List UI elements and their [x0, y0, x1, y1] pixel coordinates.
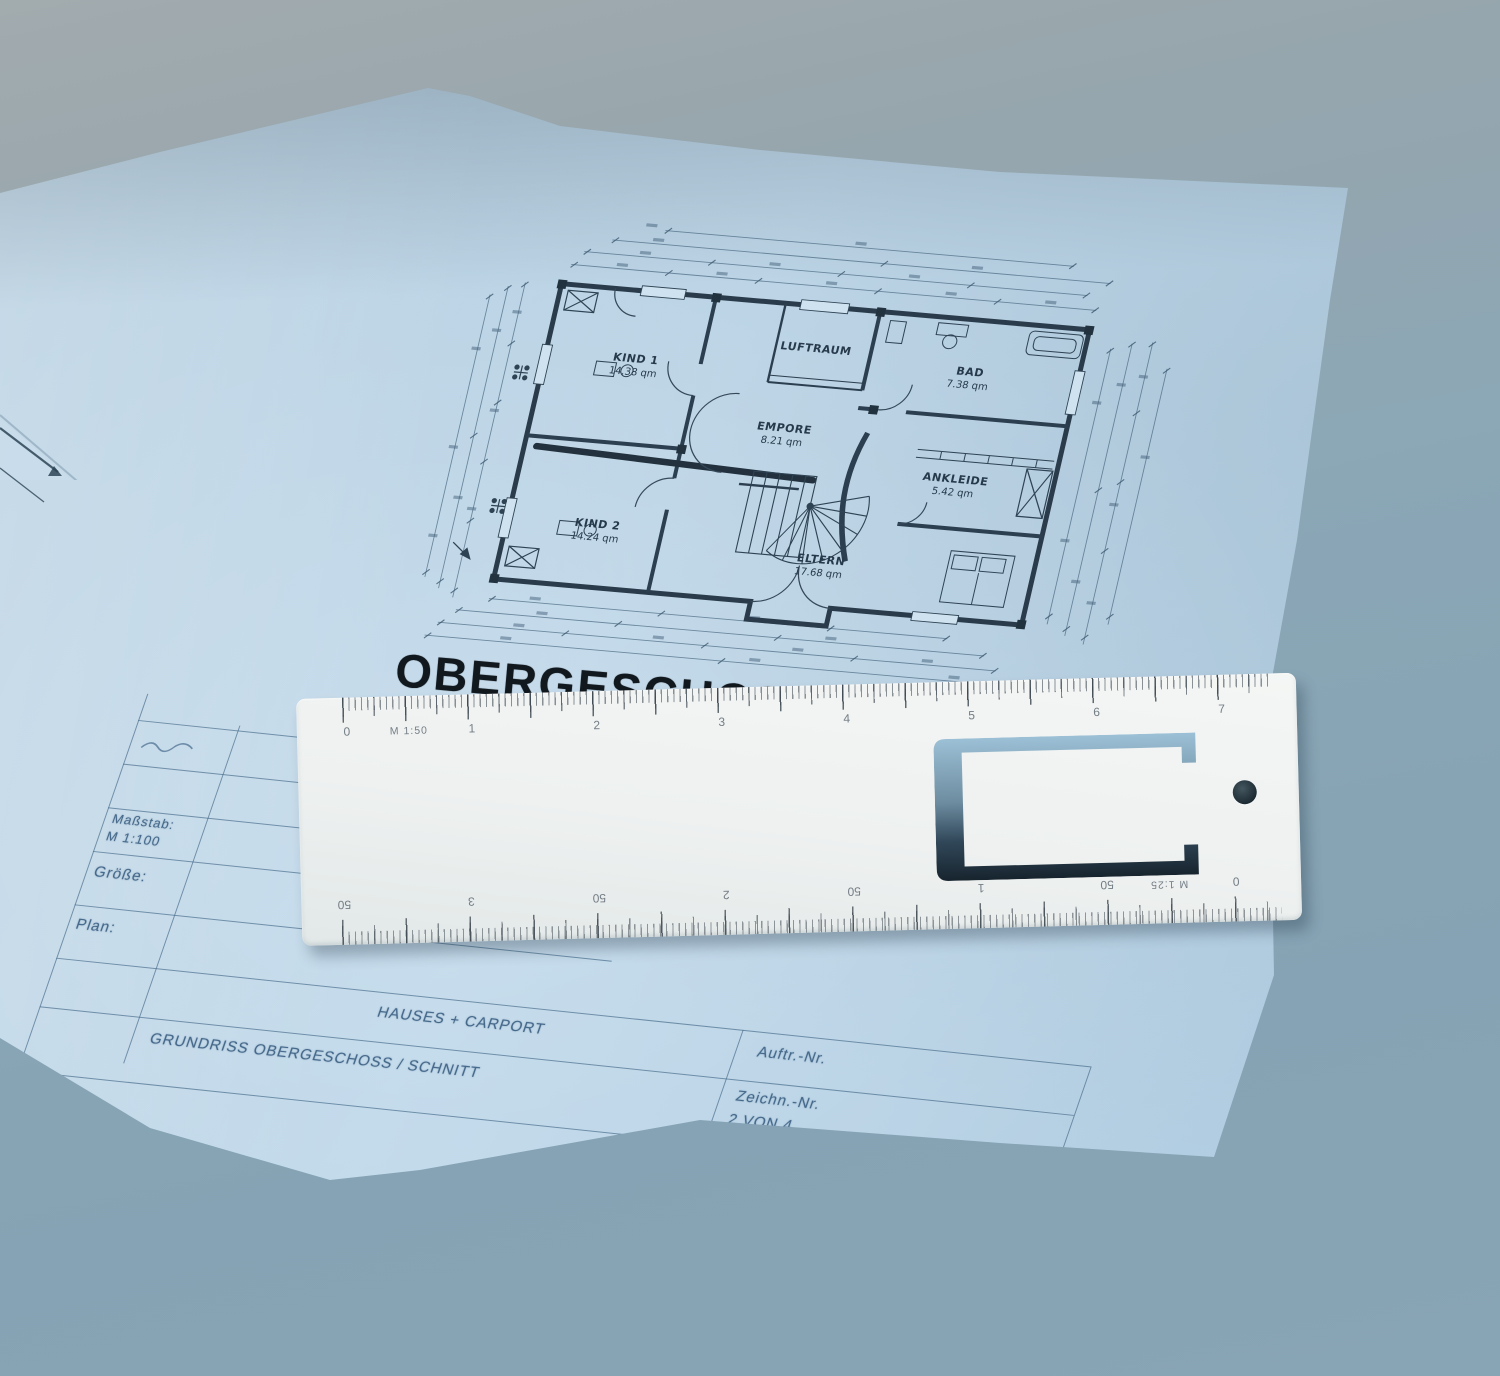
plan-label: Plan: [73, 916, 118, 937]
room-area: 5.42 qm [930, 486, 974, 500]
edge-drawing-fragment [0, 400, 80, 520]
plan-line: GRUNDRISS OBERGESCHOSS / SCHNITT [147, 1030, 482, 1081]
ruler-bottom-number: 2 [723, 888, 730, 902]
ruler-clip-cutout [933, 732, 1223, 881]
room-name: BAD [955, 365, 985, 380]
handwriting-squiggle [137, 734, 214, 763]
room-name: KIND 2 [574, 516, 622, 533]
room-area: 7.38 qm [945, 379, 989, 393]
sheet-number-label: Zeichn.-Nr. [734, 1088, 824, 1113]
room-label-eltern: ELTERN 17.68 qm [793, 551, 847, 581]
room-label-empore: EMPORE 8.21 qm [753, 419, 814, 449]
room-label-luftraum: LUFTRAUM [779, 339, 853, 358]
ruler-top-number: 6 [1093, 705, 1100, 719]
room-name: ANKLEIDE [921, 470, 989, 488]
room-name: KIND 1 [612, 351, 660, 368]
table-divider [123, 726, 241, 1064]
room-label-kind1: KIND 1 14.38 qm [608, 351, 662, 381]
room-area: 14.24 qm [569, 531, 619, 546]
ruler-top-number: 5 [968, 708, 975, 722]
ruler-bottom-scale-label: M 1:25 [1150, 878, 1188, 891]
void-railing [768, 375, 864, 390]
project-line: HAUSES + CARPORT [375, 1004, 548, 1038]
ruler-top-number: 0 [343, 725, 350, 739]
room-label-bad: BAD 7.38 qm [945, 364, 992, 393]
section-markers [450, 363, 538, 561]
scale-ruler: 0 M 1:50 1 2 3 4 5 6 7 50 3 50 2 50 1 50… [296, 673, 1302, 946]
ruler-bottom-number: 50 [592, 891, 606, 905]
ruler-bottom-number: 3 [468, 894, 475, 908]
room-label-ankleide: ANKLEIDE 5.42 qm [919, 470, 990, 501]
ruler-top-number: 4 [843, 712, 850, 726]
size-label: Größe: [91, 863, 149, 885]
ruler-bottom-number: 1 [978, 881, 985, 895]
ruler-bottom-number: 50 [847, 884, 861, 898]
outer-walls [489, 284, 1089, 643]
scale-value: M 1:100 [104, 829, 163, 849]
room-name: ELTERN [796, 551, 847, 568]
ruler-bottom-number: 50 [1100, 878, 1114, 892]
ruler-top-number: 3 [718, 715, 725, 729]
door-arcs [547, 288, 969, 614]
ruler-top-number: 1 [468, 721, 475, 735]
ruler-hole [1232, 780, 1257, 805]
order-number-label: Auftr.-Nr. [755, 1044, 829, 1068]
table-row-line [39, 1006, 1074, 1116]
room-label-kind2: KIND 2 14.24 qm [569, 516, 623, 546]
ruler-top-scale-label: M 1:50 [390, 725, 428, 738]
ruler-top-number: 7 [1218, 702, 1225, 716]
ruler-top-number: 2 [593, 718, 600, 732]
room-area: 17.68 qm [793, 566, 843, 581]
room-name: LUFTRAUM [779, 339, 853, 358]
room-area: 14.38 qm [608, 365, 658, 380]
room-area: 8.21 qm [759, 435, 803, 449]
ruler-bottom-number: 0 [1233, 874, 1240, 888]
ruler-bottom-number: 50 [338, 898, 352, 912]
